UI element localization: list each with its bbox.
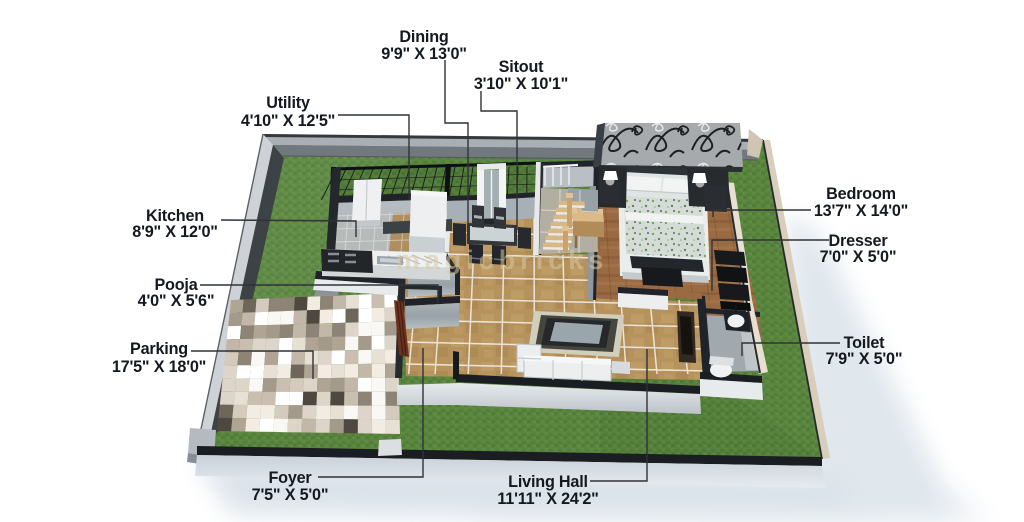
svg-text:9'9" X 13'0": 9'9" X 13'0": [381, 45, 466, 63]
svg-text:11'11" X 24'2": 11'11" X 24'2": [497, 490, 598, 508]
svg-text:Utility: Utility: [266, 94, 310, 112]
svg-text:7'0" X 5'0": 7'0" X 5'0": [820, 248, 897, 266]
svg-text:Dining: Dining: [399, 28, 448, 46]
svg-text:Bedroom: Bedroom: [826, 185, 896, 203]
svg-text:13'7" X 14'0": 13'7" X 14'0": [814, 202, 908, 220]
svg-text:Foyer: Foyer: [268, 469, 312, 487]
svg-text:3'10" X 10'1": 3'10" X 10'1": [474, 75, 568, 93]
svg-text:4'0" X 5'6": 4'0" X 5'6": [138, 292, 215, 310]
svg-text:7'5" X 5'0": 7'5" X 5'0": [252, 486, 329, 504]
svg-text:Living Hall: Living Hall: [508, 473, 588, 491]
svg-text:magicbricks: magicbricks: [396, 245, 609, 275]
svg-text:7'9" X 5'0": 7'9" X 5'0": [826, 350, 903, 368]
svg-text:Parking: Parking: [130, 340, 188, 358]
svg-text:17'5" X 18'0": 17'5" X 18'0": [112, 358, 206, 376]
svg-text:4'10" X 12'5": 4'10" X 12'5": [241, 112, 335, 130]
svg-text:Sitout: Sitout: [499, 58, 544, 76]
svg-text:8'9" X 12'0": 8'9" X 12'0": [132, 223, 217, 241]
